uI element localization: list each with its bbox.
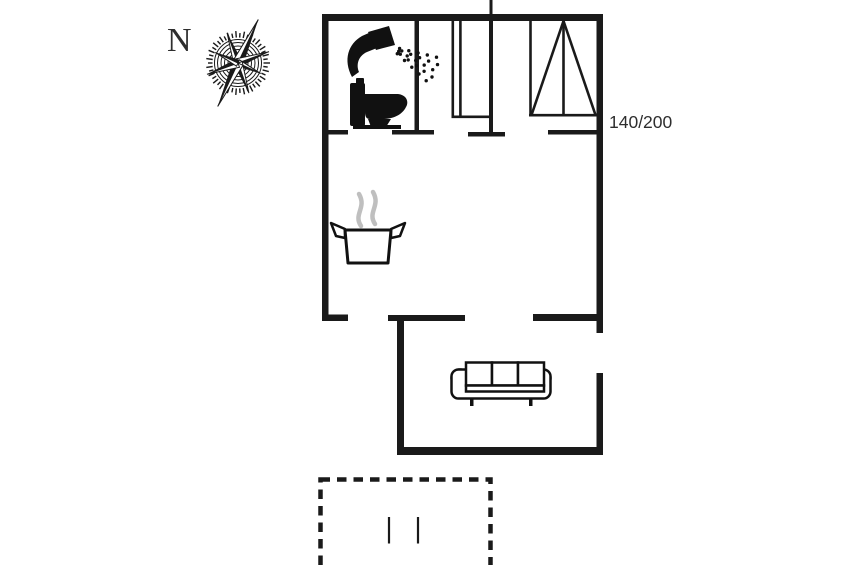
steam-wisps bbox=[358, 192, 375, 226]
compass-star bbox=[207, 20, 269, 107]
floor-plan-page: N 140/200 bbox=[0, 0, 848, 565]
wall-bathroom-right bbox=[415, 21, 420, 135]
wall-upperroom-bottom-right bbox=[533, 314, 603, 321]
wall-left bbox=[322, 14, 329, 321]
wall-chimney-stub bbox=[490, 0, 493, 16]
floor-plan-canvas: N 140/200 bbox=[0, 0, 848, 565]
shower-icon bbox=[347, 26, 439, 82]
wall-right-upper bbox=[597, 14, 604, 333]
wall-top bbox=[322, 14, 603, 21]
wall-bottom-left-stub bbox=[322, 315, 348, 322]
wall-below-bed bbox=[548, 130, 597, 135]
wall-living-bottom bbox=[397, 447, 603, 455]
toilet-icon bbox=[350, 78, 407, 129]
wardrobe-symbol bbox=[452, 21, 490, 118]
wall-living-left bbox=[397, 315, 404, 455]
north-label: N bbox=[167, 22, 192, 59]
wall-partition-cap bbox=[468, 132, 505, 137]
compass-rose-icon bbox=[206, 20, 270, 107]
wall-bathroom-bottom-left bbox=[329, 130, 349, 135]
pot-body bbox=[331, 223, 405, 263]
sofa-icon bbox=[452, 363, 551, 407]
pot-icon bbox=[331, 192, 405, 263]
bed-symbol bbox=[529, 21, 597, 117]
terrace-outline bbox=[321, 480, 491, 565]
wall-partition bbox=[489, 21, 493, 132]
wall-right-lower bbox=[597, 373, 604, 455]
wall-bathroom-bottom-right bbox=[392, 130, 434, 135]
bed-size-label: 140/200 bbox=[609, 112, 673, 132]
